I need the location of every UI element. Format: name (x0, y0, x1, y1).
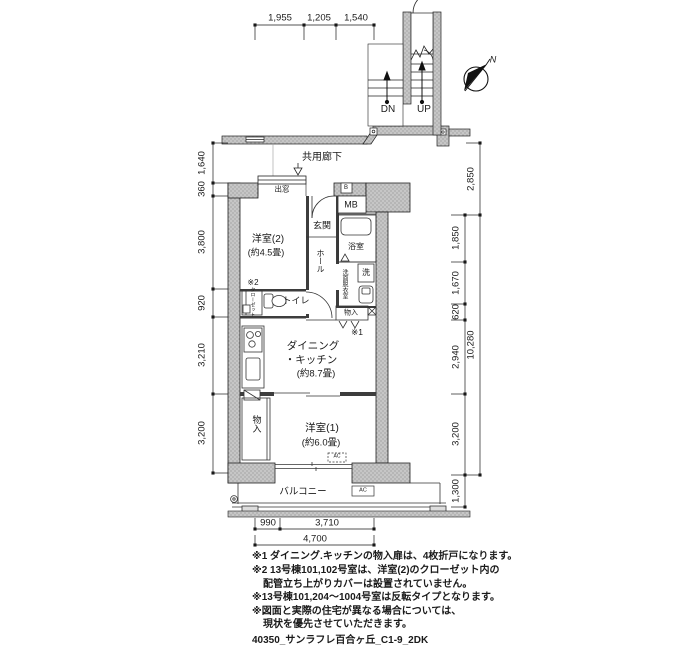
corridor-label: 共用廊下 (302, 153, 342, 163)
dim-left-1: 1,640 (197, 151, 207, 175)
dim-top-1: 1,955 (268, 13, 292, 23)
toilet-door-arc (306, 292, 332, 318)
closet-label: クローゼット (250, 287, 255, 317)
meter-box-label: MB (344, 201, 358, 210)
balcony-sliding-window (275, 462, 352, 471)
bath-label: 浴室 (348, 243, 364, 251)
dk-label-line1: ダイニング (287, 341, 340, 352)
balcony-structure (231, 483, 446, 512)
bedroom2-size-label: (約4.5畳) (248, 249, 285, 258)
note1-marker: ※1 (351, 328, 363, 337)
compass-icon (464, 59, 490, 91)
bay-window-label: 出窓 (275, 185, 290, 193)
dim-right-5: 2,940 (451, 345, 461, 369)
plan-title: 40350_サンラフレ百合ヶ丘_C1-9_2DK (252, 636, 428, 646)
dim-left-6: 3,200 (197, 421, 207, 445)
note-line-5: ※図面と実際の住宅が異なる場合については、 (252, 607, 461, 617)
toilet-label: トイレ (282, 297, 309, 306)
washroom-label: 洗面脱衣室 (341, 269, 347, 299)
floor-plan-page: 1,955 1,205 1,540 DN UP N 共用廊下 出窓 B MB 玄… (0, 0, 700, 650)
dim-right-7: 1,300 (451, 479, 461, 503)
dk-label-line2: ・キッチン (285, 355, 338, 366)
note-line-1: ※1 ダイニング.キッチンの物入扉は、4枚折戸になります。 (252, 552, 517, 562)
kitchen-counter (242, 326, 264, 400)
balcony-label: バルコニー (279, 487, 326, 497)
dim-top-2: 1,205 (307, 13, 331, 23)
ac-label-bedroom1: AC (334, 455, 341, 460)
storage-b1-label: 物入 (252, 415, 261, 433)
bedroom1-size-label: (約6.0畳) (302, 438, 341, 448)
dim-right-1: 2,850 (466, 167, 476, 191)
dim-left-4: 920 (197, 295, 207, 311)
dim-left-3: 3,800 (197, 230, 207, 254)
note2-marker: ※2 (247, 279, 258, 287)
ground-hatch-band (228, 511, 470, 517)
dim-right-total: 10,280 (466, 330, 476, 359)
compass-north-label: N (490, 56, 497, 65)
stairs-up-label: UP (417, 105, 431, 115)
dim-bottom-total: 4,700 (303, 534, 327, 544)
dim-right-2: 1,850 (451, 226, 461, 250)
dim-left-2: 360 (197, 181, 207, 197)
entrance-label: 玄関 (313, 222, 331, 231)
note-line-4: ※13号棟101,204〜1004号室は反転タイプとなります。 (252, 593, 500, 603)
note-line-2: ※2 13号棟101,102号室は、洋室(2)のクローゼット内の (252, 566, 500, 576)
dim-left-5: 3,210 (197, 343, 207, 367)
stairs-down-label: DN (381, 105, 395, 115)
ac-label-balcony: AC (359, 488, 367, 494)
dim-right-3: 1,670 (451, 271, 461, 295)
dim-right-6: 3,200 (451, 422, 461, 446)
storage-dk-label: 物入 (344, 310, 358, 317)
note-line-3: 配管立ち上がりカバーは設置されていません。 (263, 580, 472, 590)
dim-right-4: 620 (451, 304, 461, 320)
bedroom2-label: 洋室(2) (252, 235, 284, 245)
dim-bottom-2: 3,710 (315, 518, 339, 528)
dim-bottom-1: 990 (260, 518, 276, 528)
bedroom1-label: 洋室(1) (305, 423, 339, 434)
shaft-label: B (344, 185, 348, 191)
bathroom-fixtures (338, 215, 376, 262)
dim-top-3: 1,540 (344, 13, 368, 23)
hall-label: ホール (316, 249, 324, 273)
note-line-6: 現状を優先させていただきます。 (263, 620, 412, 630)
entrance-door-arc (312, 196, 334, 218)
laundry-label: 洗 (362, 269, 370, 277)
dk-size-label: (約8.7畳) (297, 369, 336, 379)
